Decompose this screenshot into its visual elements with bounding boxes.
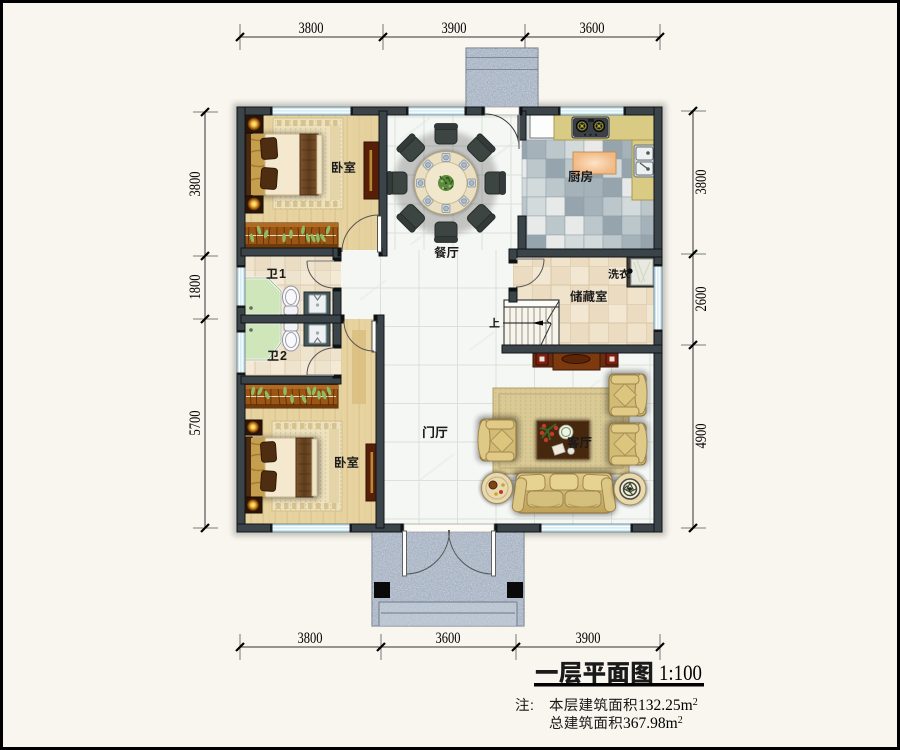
svg-text:367.98m2: 367.98m2 bbox=[623, 715, 683, 732]
svg-text:5700: 5700 bbox=[187, 410, 204, 435]
svg-text:1800: 1800 bbox=[187, 274, 204, 299]
svg-text:3800: 3800 bbox=[298, 630, 323, 647]
svg-text:4900: 4900 bbox=[693, 423, 710, 448]
svg-text:3800: 3800 bbox=[299, 20, 324, 37]
svg-text:2600: 2600 bbox=[693, 286, 710, 311]
svg-text:3900: 3900 bbox=[442, 20, 467, 37]
svg-text:1: 1 bbox=[279, 267, 286, 281]
svg-text:3900: 3900 bbox=[576, 630, 601, 647]
svg-text::: : bbox=[530, 697, 534, 713]
svg-text:1:100: 1:100 bbox=[659, 660, 702, 685]
svg-text:3800: 3800 bbox=[187, 171, 204, 196]
svg-text:3800: 3800 bbox=[693, 169, 710, 194]
svg-text:3600: 3600 bbox=[436, 630, 461, 647]
svg-text:132.25m2: 132.25m2 bbox=[638, 697, 698, 714]
svg-text:3600: 3600 bbox=[580, 20, 605, 37]
svg-text:2: 2 bbox=[280, 349, 287, 363]
